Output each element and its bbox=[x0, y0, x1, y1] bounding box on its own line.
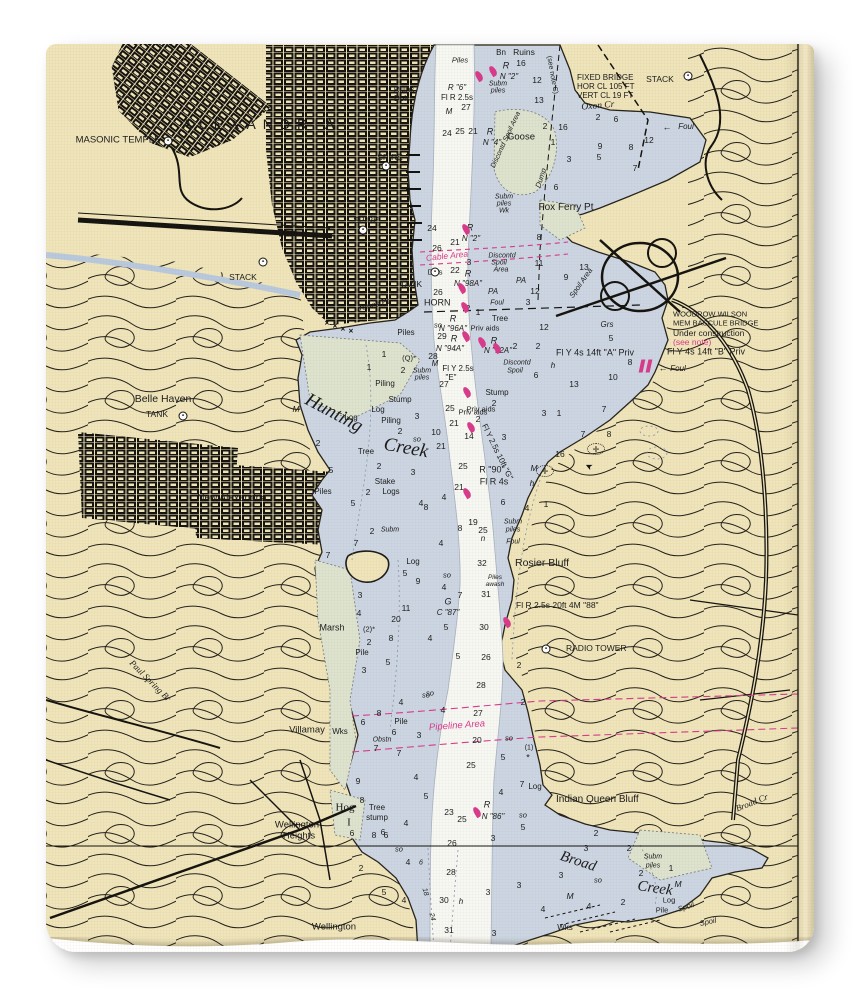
product-page: ALEXANDRIAMASONIC TEMPLESPIRESPIRESTACKT… bbox=[0, 0, 860, 1000]
island bbox=[346, 551, 389, 582]
nautical-chart-graphic bbox=[46, 44, 814, 952]
fleece-blanket: ALEXANDRIAMASONIC TEMPLESPIRESPIRESTACKT… bbox=[46, 44, 814, 952]
new-alexandria-grid bbox=[192, 462, 332, 545]
chart-margin bbox=[798, 44, 814, 952]
